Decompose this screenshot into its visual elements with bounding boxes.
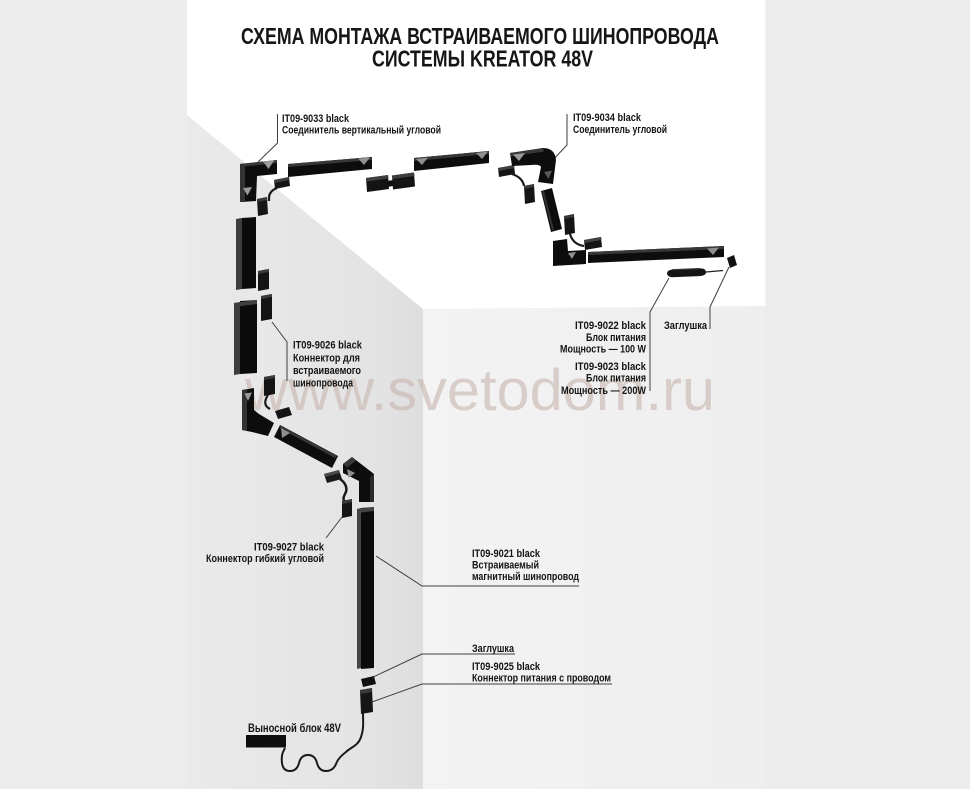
- svg-text:IT09-9034 black: IT09-9034 black: [573, 112, 642, 124]
- svg-text:СИСТЕМЫ KREATOR 48V: СИСТЕМЫ KREATOR 48V: [372, 46, 593, 72]
- svg-text:Блок питания: Блок питания: [586, 332, 646, 344]
- svg-text:Коннектор гибкий угловой: Коннектор гибкий угловой: [206, 553, 324, 565]
- svg-text:Соединитель угловой: Соединитель угловой: [573, 124, 667, 136]
- svg-text:IT09-9027 black: IT09-9027 black: [254, 542, 325, 554]
- svg-text:Коннектор для: Коннектор для: [293, 353, 360, 365]
- svg-text:Коннектор питания с проводом: Коннектор питания с проводом: [472, 673, 611, 685]
- svg-text:IT09-9025 black: IT09-9025 black: [472, 661, 541, 673]
- svg-text:IT09-9023 black: IT09-9023 black: [575, 361, 647, 373]
- svg-text:Выносной блок 48V: Выносной блок 48V: [248, 721, 341, 735]
- svg-text:Мощность — 200W: Мощность — 200W: [561, 385, 647, 397]
- svg-text:IT09-9021 black: IT09-9021 black: [472, 548, 541, 560]
- svg-text:магнитный шинопровод: магнитный шинопровод: [472, 571, 579, 583]
- svg-text:встраиваемого: встраиваемого: [293, 365, 361, 377]
- svg-text:IT09-9022 black: IT09-9022 black: [575, 320, 647, 332]
- svg-text:Заглушка: Заглушка: [664, 320, 708, 332]
- svg-text:Соединитель вертикальный углов: Соединитель вертикальный угловой: [282, 125, 441, 137]
- svg-text:IT09-9033 black: IT09-9033 black: [282, 113, 350, 125]
- svg-text:Блок питания: Блок питания: [586, 373, 646, 385]
- svg-text:шинопровода: шинопровода: [293, 378, 354, 390]
- svg-text:Мощность — 100 W: Мощность — 100 W: [560, 344, 646, 356]
- svg-text:IT09-9026 black: IT09-9026 black: [293, 340, 363, 352]
- svg-text:Заглушка: Заглушка: [472, 643, 515, 655]
- svg-text:Встраиваемый: Встраиваемый: [472, 560, 539, 572]
